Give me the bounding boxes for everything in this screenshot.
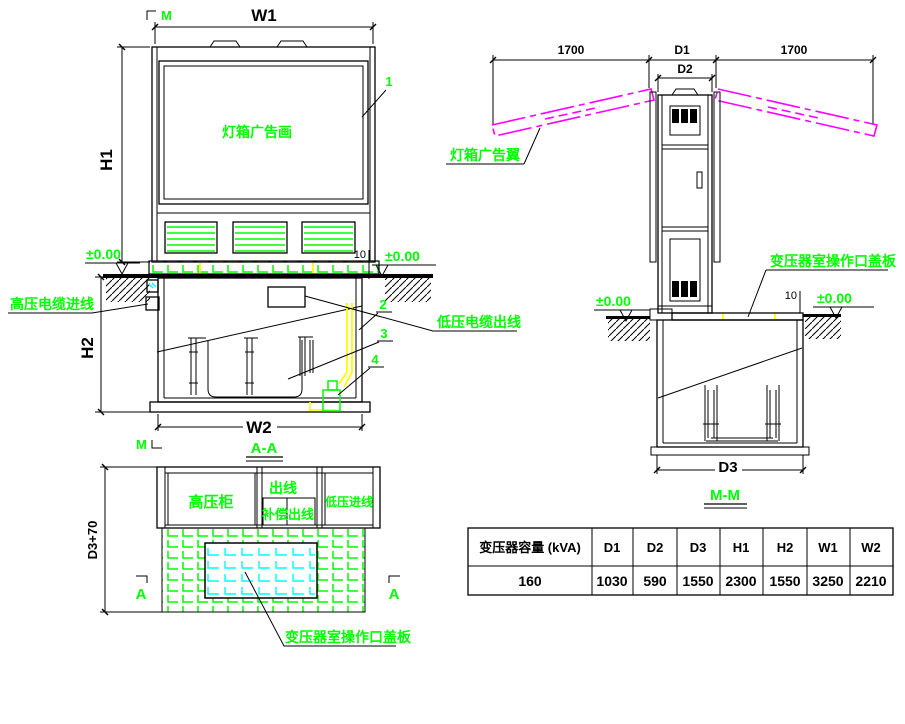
section-cut-bracket-top (147, 11, 156, 20)
front-view: W1 M M 灯箱广告画 1 (8, 6, 521, 461)
header-w1: W1 (818, 540, 838, 555)
dim-w1: W1 (155, 6, 373, 44)
cut-a-right: A (389, 586, 400, 603)
dim-h1-label: H1 (97, 149, 116, 171)
dim-d3: D3 (657, 455, 803, 476)
lv-incoming-label: 低压进线 (324, 494, 373, 509)
vault-slab-side (651, 447, 809, 455)
side-level-right-label: ±0.00 (817, 290, 852, 306)
column-roof-vent (672, 89, 698, 95)
side-cover-label: 变压器室操作口盖板 (770, 253, 897, 269)
roof-vent-left (210, 41, 240, 47)
value-w1: 3250 (812, 573, 843, 589)
section-title-aa: A-A (251, 440, 278, 457)
lightbox-label: 灯箱广告画 (222, 124, 292, 140)
dim-d3-70: D3+70 (85, 467, 105, 612)
table-header-row: 变压器容量 (kVA) D1 D2 D3 H1 H2 W1 W2 (479, 540, 881, 555)
cut-a-bracket-left (136, 576, 147, 583)
dim-w1-label: W1 (251, 6, 277, 25)
value-d1: 1030 (596, 573, 627, 589)
compensation-label: 补偿 (261, 507, 288, 522)
header-h1: H1 (733, 540, 750, 555)
level-mark-left: ±0.00 (85, 246, 140, 274)
side-level-left-label: ±0.00 (596, 293, 631, 309)
annotation-wing: 灯箱广告翼 (446, 128, 540, 164)
dim-d1-label: D1 (674, 43, 690, 57)
dim-h2-label: H2 (78, 337, 97, 359)
balloon-3-label: 3 (380, 326, 387, 341)
balloon-1-label: 1 (385, 74, 392, 89)
louver-vents (165, 222, 355, 253)
outgoing-top-label: 出线 (269, 480, 297, 496)
header-d1: D1 (604, 540, 621, 555)
side-view: 1700 D1 1700 D2 灯箱广告翼 (446, 43, 897, 508)
section-cut-bracket-bottom (152, 440, 162, 448)
ground-hatch-right (385, 278, 431, 302)
value-w2: 2210 (855, 573, 886, 589)
section-break-line (157, 306, 362, 352)
dim-d3-70-label: D3+70 (85, 521, 100, 560)
side-plate-thickness: 10 (785, 290, 797, 302)
wing-label: 灯箱广告翼 (450, 147, 520, 163)
plan-view: 高压柜 出线 补偿 出线 低压进线 D3+70 A A 变压器室操作口盖板 (85, 467, 412, 646)
cut-a-bracket-right (389, 576, 400, 583)
wing-rail-right (714, 92, 720, 262)
header-capacity: 变压器容量 (kVA) (479, 540, 581, 555)
value-d2: 590 (643, 573, 667, 589)
balloon-1: 1 (362, 74, 393, 117)
dim-1700-right: 1700 (781, 43, 808, 57)
front-view-title: A-A (246, 440, 283, 461)
value-d3: 1550 (682, 573, 713, 589)
roof-vent-right (277, 41, 307, 47)
side-cover-plate (672, 313, 803, 320)
column-foot (650, 309, 672, 320)
hv-cabinet-label: 高压柜 (188, 493, 233, 511)
transformer-kiosk-drawing: W1 M M 灯箱广告画 1 (0, 0, 905, 724)
header-h2: H2 (777, 540, 794, 555)
vault-side (651, 320, 809, 455)
kiosk-column (650, 89, 720, 320)
cut-a-left: A (136, 586, 147, 603)
value-h2: 1550 (769, 573, 800, 589)
table-data-row: 160 1030 590 1550 2300 1550 3250 2210 (518, 573, 886, 589)
header-w2: W2 (861, 540, 881, 555)
vault-front (146, 278, 370, 412)
dim-h1: H1 (97, 47, 150, 262)
cable-terminal-top (328, 381, 337, 390)
junction-box (268, 287, 305, 307)
balloon-2-label: 2 (379, 297, 386, 312)
value-capacity: 160 (518, 573, 542, 589)
ground-hatch-right (805, 317, 841, 339)
dim-1700-left: 1700 (558, 43, 585, 57)
lightbox-body: 灯箱广告画 (152, 41, 375, 262)
section-cut-m-top: M (161, 8, 172, 23)
plan-cover-label: 变压器室操作口盖板 (285, 629, 412, 645)
spec-table: 变压器容量 (kVA) D1 D2 D3 H1 H2 W1 W2 160 103… (468, 528, 893, 595)
lv-out-label: 低压电缆出线 (436, 314, 521, 330)
plate-thickness-label: 10 (354, 249, 366, 261)
hv-in-label: 高压电缆进线 (10, 296, 94, 312)
dim-w2-label: W2 (246, 418, 272, 437)
dim-d2-label: D2 (677, 62, 693, 76)
transformer-front (188, 337, 313, 397)
balloon-4-label: 4 (371, 352, 379, 367)
ground-hatch-left (608, 319, 650, 341)
side-view-title: M-M (704, 487, 747, 508)
lv-cable (310, 303, 352, 410)
section-break-line-side (658, 348, 802, 398)
level-right-label: ±0.00 (385, 248, 420, 264)
ground-hatch-left (106, 278, 150, 302)
section-title-mm: M-M (710, 487, 740, 504)
header-d2: D2 (647, 540, 664, 555)
cad-drawing-sheet: W1 M M 灯箱广告画 1 (0, 0, 905, 724)
header-d3: D3 (690, 540, 707, 555)
level-left-label: ±0.00 (86, 246, 121, 262)
side-level-right: 10 ±0.00 (785, 290, 874, 318)
dim-d3-label: D3 (718, 459, 737, 476)
outgoing-bottom-label: 出线 (288, 507, 314, 522)
transformer-side (703, 385, 781, 441)
value-h1: 2300 (725, 573, 756, 589)
door-handle (697, 172, 702, 188)
section-cut-m-bottom: M (136, 437, 147, 452)
cable-terminal-box (323, 390, 340, 411)
dim-w2: W2 (158, 414, 362, 437)
balloon-4: 4 (338, 352, 384, 395)
wing-rail-left (650, 92, 656, 262)
